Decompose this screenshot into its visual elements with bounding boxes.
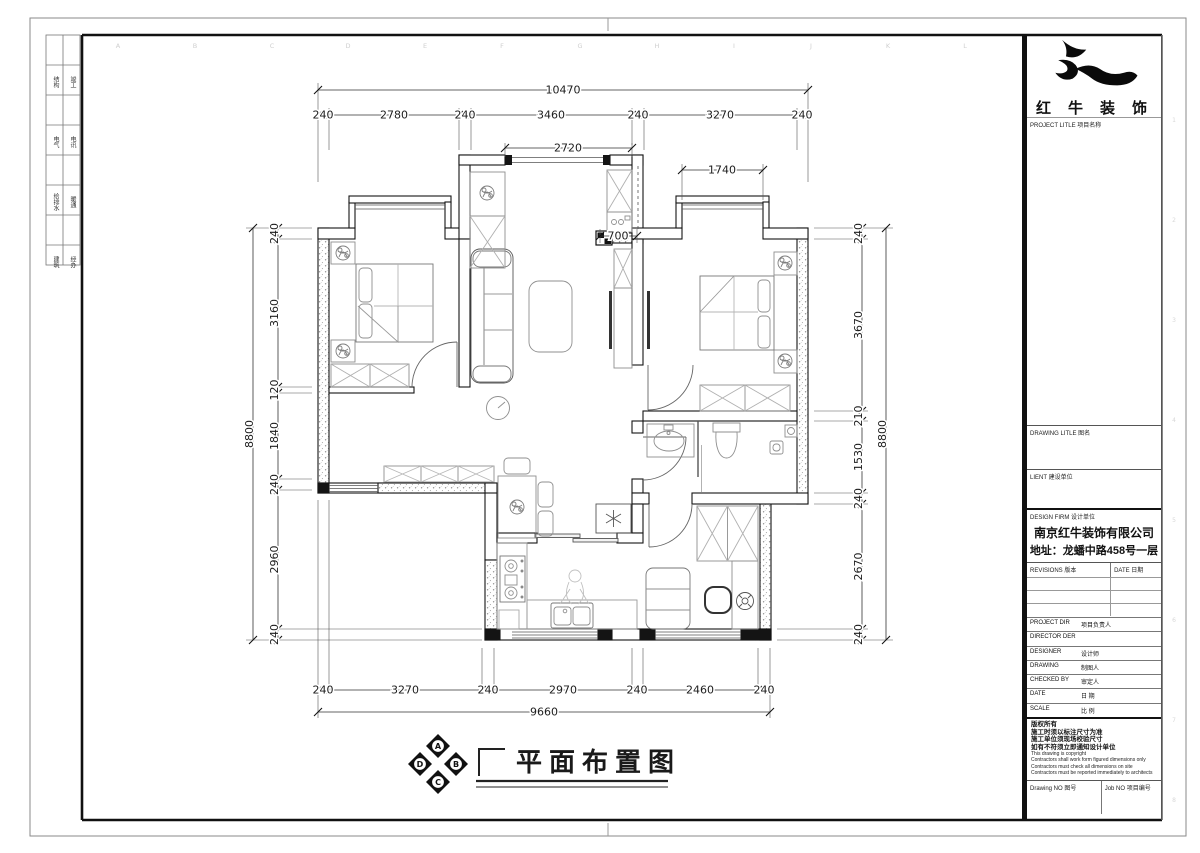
- dim-cabinet: 700: [608, 230, 629, 243]
- bathroom-door: [643, 437, 686, 480]
- bed: [700, 276, 774, 350]
- study-east-wall: [760, 504, 771, 640]
- svg-text:210: 210: [852, 406, 865, 427]
- floor-drain: [788, 428, 795, 435]
- svg-text:2970: 2970: [549, 684, 577, 697]
- svg-text:3270: 3270: [706, 109, 734, 122]
- daybed: [646, 568, 690, 629]
- date-label: DATE 日期: [1110, 563, 1161, 577]
- bedroom2-door: [648, 365, 693, 410]
- title-block: 红牛装饰 PROJECT LITLE 项目名称 DRAWING LITLE 图名…: [1027, 35, 1162, 820]
- company-logo: [1027, 35, 1161, 97]
- east-wall: [797, 228, 808, 504]
- svg-text:C: C: [435, 778, 441, 787]
- svg-text:2780: 2780: [380, 109, 408, 122]
- staff-label: DRAWING: [1027, 661, 1079, 669]
- tv-living: [609, 291, 612, 349]
- svg-text:D: D: [417, 760, 424, 769]
- firm-address: 地址：龙蟠中路458号一层: [1027, 542, 1161, 558]
- floor-plan-canvas: A B C D E F G H I J K L 1 2 3 4 5 6 7 8: [0, 0, 1200, 853]
- svg-text:2: 2: [1172, 217, 1176, 224]
- signature-label: 建筑: [49, 248, 60, 276]
- svg-text:240: 240: [852, 488, 865, 509]
- svg-text:3270: 3270: [391, 684, 419, 697]
- svg-text:240: 240: [268, 223, 281, 244]
- foyer-furniture: [470, 170, 632, 268]
- brand-name: 红牛装饰: [1027, 97, 1161, 117]
- dim-top-total: 10470: [546, 84, 581, 97]
- drawing-sheet: A B C D E F G H I J K L 1 2 3 4 5 6 7 8: [0, 0, 1200, 853]
- svg-text:240: 240: [313, 109, 334, 122]
- doors: [412, 342, 693, 547]
- bathroom-fixtures: [647, 421, 797, 492]
- svg-text:H: H: [655, 42, 660, 50]
- svg-text:5: 5: [1172, 517, 1176, 524]
- bedroom1-south-wall: [329, 387, 414, 393]
- dim-entry: 2720: [554, 142, 582, 155]
- svg-text:B: B: [453, 760, 459, 769]
- staff-label: DATE: [1027, 689, 1079, 697]
- bedroom2-west-wall: [632, 239, 643, 365]
- staff-label: DESIGNER: [1027, 647, 1079, 655]
- svg-text:7: 7: [1172, 717, 1176, 724]
- sofa: [471, 249, 513, 383]
- dimension-text: 10470 240 2780 240 3460 240 3270 240 272…: [243, 84, 889, 719]
- revisions-label: REVISIONS 版本: [1027, 563, 1110, 577]
- svg-text:240: 240: [627, 684, 648, 697]
- svg-text:240: 240: [792, 109, 813, 122]
- dimension-ticks: [249, 86, 890, 716]
- client-label: LIENT 建设单位: [1027, 470, 1161, 481]
- sheet-frame: [30, 18, 1186, 836]
- svg-text:F: F: [500, 42, 504, 50]
- living-room-furniture: [471, 249, 650, 420]
- svg-text:1: 1: [1172, 117, 1176, 124]
- job-no-label: Job NO 项目编号: [1101, 781, 1161, 814]
- dimension-lines: [253, 90, 886, 712]
- tv-bedroom: [647, 291, 650, 349]
- project-title-label: PROJECT LITLE 项目名称: [1027, 118, 1161, 129]
- svg-text:240: 240: [268, 624, 281, 645]
- study-furniture: [646, 506, 758, 629]
- svg-text:1530: 1530: [852, 443, 865, 471]
- person-figure: [560, 570, 589, 604]
- bedroom2-furniture: [700, 252, 797, 411]
- signature-label: 结构: [49, 68, 60, 96]
- dim-left-total: 8800: [243, 420, 256, 448]
- toilet-tank: [713, 423, 740, 432]
- walls: [318, 155, 808, 640]
- kitchen-west-wall-lower: [485, 560, 497, 640]
- drawing-title-label: DRAWING LITLE 图名: [1027, 426, 1161, 437]
- signature-label: 经办: [66, 248, 77, 276]
- coffee-table: [529, 281, 572, 352]
- svg-text:J: J: [809, 42, 812, 50]
- svg-text:3160: 3160: [268, 299, 281, 327]
- chair: [705, 587, 731, 613]
- furniture: [331, 170, 797, 629]
- svg-text:E: E: [423, 42, 427, 50]
- dining-furniture: [384, 458, 553, 538]
- bedroom1-east-wall: [459, 239, 470, 387]
- snowflake-icon: [606, 510, 621, 527]
- revisions-table: REVISIONS 版本 DATE 日期: [1027, 562, 1161, 617]
- svg-text:240: 240: [478, 684, 499, 697]
- signature-label: 电讯: [66, 128, 77, 156]
- toilet: [716, 432, 737, 458]
- bedroom2-south-wall: [643, 411, 797, 421]
- svg-text:8: 8: [1172, 797, 1176, 804]
- svg-text:6: 6: [1172, 617, 1176, 624]
- study-door: [649, 504, 692, 547]
- svg-text:K: K: [886, 42, 891, 50]
- svg-text:C: C: [270, 42, 275, 50]
- kitchen-sliding-door: [535, 534, 618, 542]
- svg-text:240: 240: [455, 109, 476, 122]
- svg-text:4: 4: [1172, 417, 1176, 424]
- svg-text:A: A: [435, 742, 442, 751]
- staff-label: PROJECT DIR: [1027, 618, 1079, 626]
- svg-text:2460: 2460: [686, 684, 714, 697]
- design-firm-label: DESIGN FIRM 设计单位: [1027, 510, 1161, 521]
- svg-text:3460: 3460: [537, 109, 565, 122]
- compass-rosette: A B C D: [408, 734, 468, 794]
- bed: [356, 264, 433, 342]
- grid-reference-numbers: 1 2 3 4 5 6 7 8: [1172, 117, 1176, 804]
- bath-south-wall: [692, 493, 808, 504]
- grid-reference-letters: A B C D E F G H I J K L: [116, 42, 967, 50]
- svg-text:G: G: [577, 42, 582, 50]
- bull-logo-icon: [1039, 37, 1149, 95]
- drawing-no-label: Drawing NO 图号: [1027, 781, 1101, 814]
- svg-text:3670: 3670: [852, 311, 865, 339]
- svg-text:D: D: [345, 42, 350, 50]
- drawing-title: 平面布置图: [476, 748, 681, 787]
- svg-text:3: 3: [1172, 317, 1176, 324]
- staff-label: CHECKED BY: [1027, 675, 1079, 683]
- dim-window: 1740: [708, 164, 736, 177]
- kitchen-west-wall-upper: [485, 483, 497, 560]
- svg-text:L: L: [963, 42, 967, 50]
- firm-name: 南京红牛装饰有限公司: [1027, 524, 1161, 541]
- svg-text:120: 120: [268, 380, 281, 401]
- staff-label: SCALE: [1027, 704, 1079, 712]
- signature-label: 电气: [49, 128, 60, 156]
- svg-text:240: 240: [268, 474, 281, 495]
- drawing-number-row: Drawing NO 图号 Job NO 项目编号: [1027, 780, 1161, 814]
- svg-text:240: 240: [754, 684, 775, 697]
- svg-text:240: 240: [852, 223, 865, 244]
- svg-text:1840: 1840: [268, 422, 281, 450]
- signature-label: 竣工: [66, 68, 77, 96]
- kitchen-furniture: [497, 504, 637, 629]
- dim-right-total: 8800: [876, 420, 889, 448]
- svg-text:I: I: [733, 42, 735, 50]
- staff-rows: PROJECT DIR项目负责人 DIRECTOR DER DESIGNER设计…: [1027, 617, 1161, 717]
- windows: [329, 155, 763, 638]
- svg-text:240: 240: [852, 624, 865, 645]
- laundry-cabinet: [732, 561, 758, 629]
- svg-text:2670: 2670: [852, 553, 865, 581]
- signature-label: 给排水: [49, 188, 60, 216]
- svg-text:B: B: [193, 42, 197, 50]
- tv-cabinet: [614, 288, 632, 368]
- drawing-title-text: 平面布置图: [516, 748, 681, 778]
- copyright-block: 版权所有 施工时须以标注尺寸为准 施工单位须现场校验尺寸 如有不符须立即通知设计…: [1027, 717, 1161, 780]
- title-corner-mark: [479, 749, 505, 776]
- svg-text:A: A: [116, 42, 121, 50]
- svg-text:240: 240: [313, 684, 334, 697]
- svg-text:240: 240: [628, 109, 649, 122]
- bedroom1-door: [412, 342, 457, 387]
- signature-label: 暖通: [66, 188, 77, 216]
- extension-lines: [246, 83, 893, 718]
- dim-bottom-total: 9660: [530, 706, 558, 719]
- west-wall: [318, 228, 329, 493]
- svg-text:2960: 2960: [268, 546, 281, 574]
- staff-label: DIRECTOR DER: [1027, 632, 1079, 640]
